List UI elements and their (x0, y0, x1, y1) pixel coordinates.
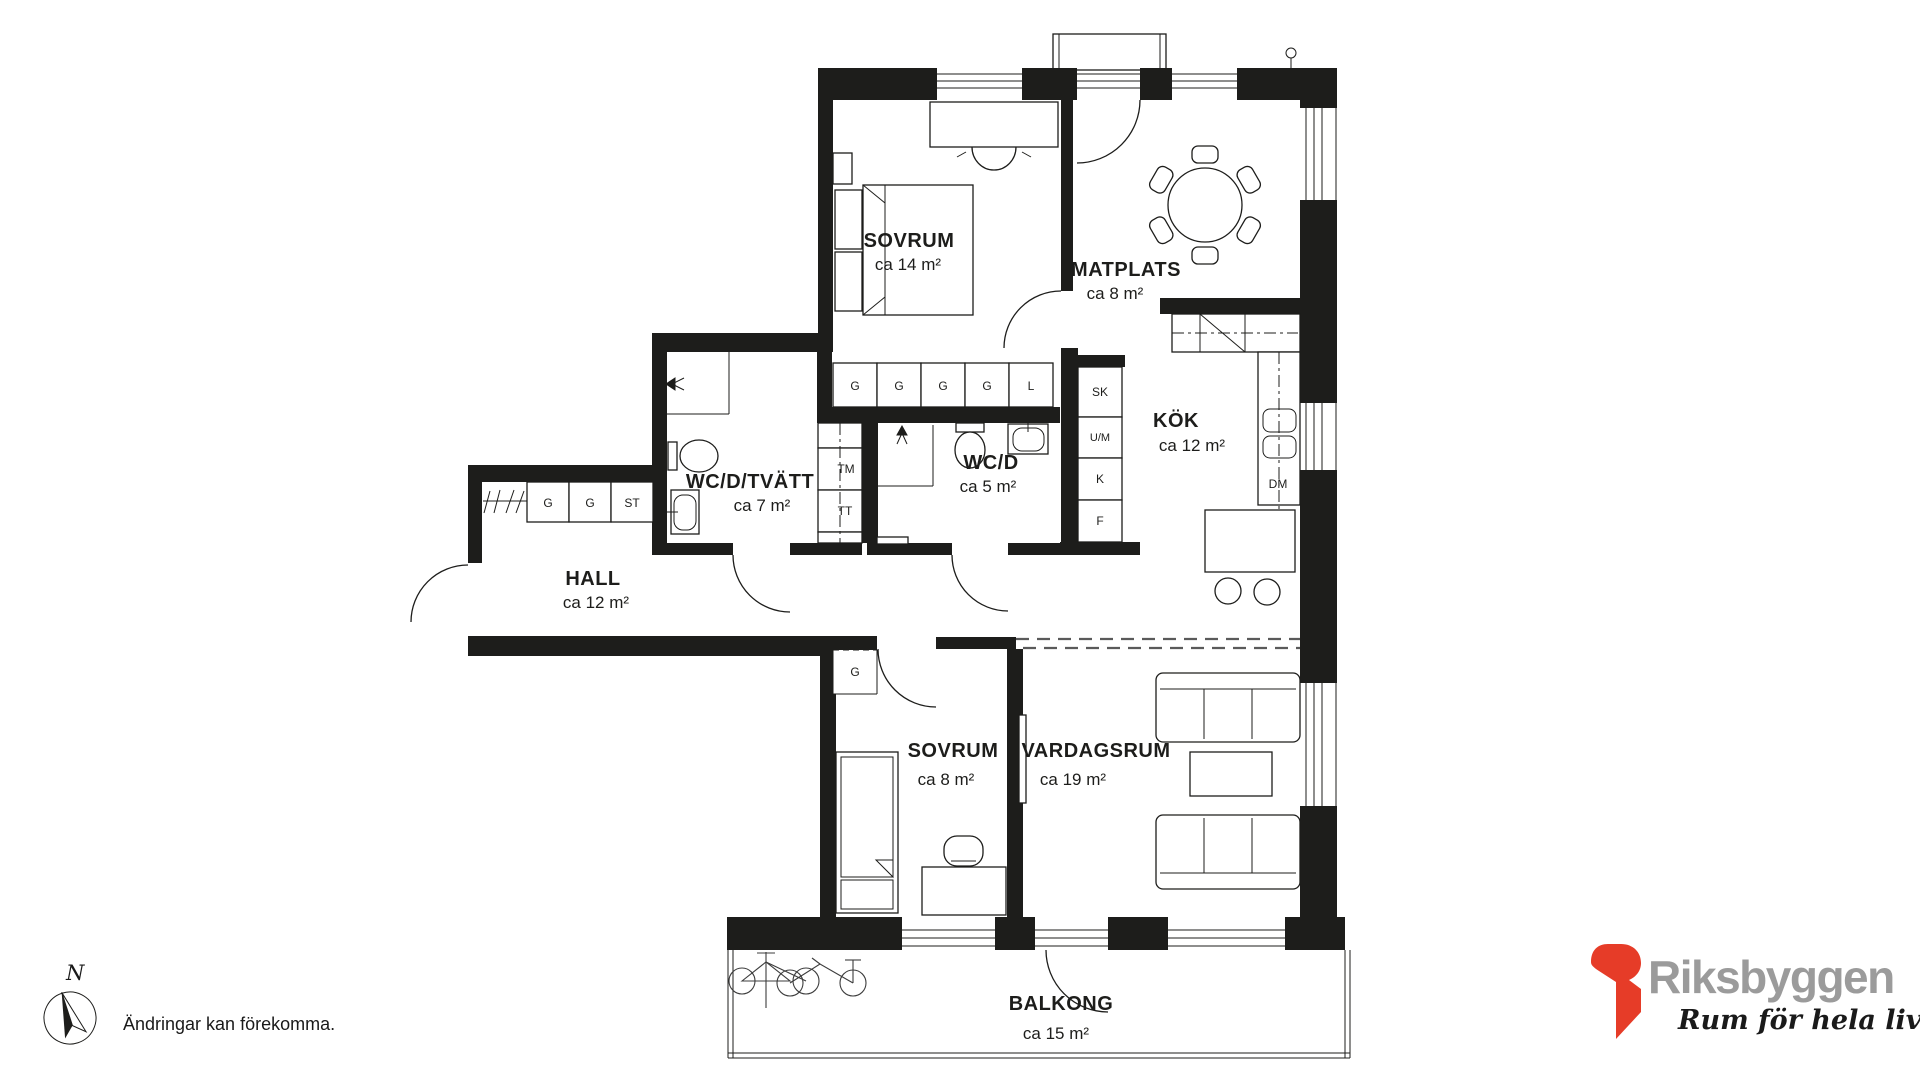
entry-door-arc (411, 565, 468, 622)
roof-shaft (1053, 34, 1296, 70)
room-label-matplats: MATPLATS ca 8 m² (1071, 259, 1181, 303)
window-matplats-top (1172, 74, 1237, 88)
vent-circle (1286, 48, 1296, 58)
window-bedroom2-bottom (902, 930, 995, 946)
room-label-vardagsrum: VARDAGSRUM ca 19 m² (1021, 740, 1170, 789)
window-livingroom-bottom (1168, 930, 1285, 946)
room-label-balkong: BALKONG ca 15 m² (1009, 993, 1114, 1043)
window-livingroom-right (1306, 683, 1336, 806)
entry-hatch-marks (483, 490, 527, 513)
doors (411, 100, 1140, 1012)
shelf (877, 537, 908, 544)
svg-text:SOVRUM: SOVRUM (864, 230, 955, 252)
svg-text:MATPLATS: MATPLATS (1071, 259, 1181, 281)
bicycles (729, 952, 866, 1008)
radiator (833, 153, 852, 184)
sofa-top (1156, 673, 1300, 742)
floorplan-page: G G G G L G G ST SK U/M K F (0, 0, 1920, 1080)
kitchen-fixtures: DM (1172, 314, 1300, 605)
room-label-wcd-tvatt: WC/D/TVÄTT ca 7 m² (686, 470, 814, 515)
room-label-hall: HALL ca 12 m² (563, 568, 629, 612)
cabinet-label: U/M (1090, 432, 1110, 444)
desk-chair (972, 147, 1016, 170)
matplats-balcony-door-arc (1077, 100, 1140, 163)
svg-text:SOVRUM: SOVRUM (908, 740, 999, 762)
toilet (668, 440, 718, 472)
bathroom1-fixtures (666, 352, 729, 534)
bathroom1-door-arc (733, 555, 790, 612)
svg-text:ca 12 m²: ca 12 m² (1159, 436, 1225, 455)
kitchen-cabinet-column: SK U/M K F (1078, 367, 1122, 542)
cabinet-label: F (1096, 514, 1103, 528)
bar-stool (1215, 578, 1241, 604)
riksbyggen-logo-mark (1591, 944, 1641, 1039)
cabinet-label: SK (1092, 385, 1108, 399)
sofa-bottom (1156, 815, 1300, 889)
bar-stool (1254, 579, 1280, 605)
single-bed (836, 752, 898, 913)
bedroom2-door-arc (878, 649, 936, 707)
desk (930, 102, 1058, 147)
cabinet-label: K (1096, 472, 1104, 486)
appliance-label: TT (838, 504, 853, 518)
riksbyggen-logo: Riksbyggen Rum för hela livet (1591, 944, 1920, 1039)
room-label-sovrum-8: SOVRUM ca 8 m² (908, 740, 999, 789)
hall-wardrobe-row: G G ST (527, 482, 653, 522)
floorplan-canvas: G G G G L G G ST SK U/M K F (0, 0, 1920, 1080)
bedroom1-furniture (833, 102, 1058, 315)
svg-text:WC/D: WC/D (963, 452, 1018, 474)
disclaimer-text: Ändringar kan förekomma. (123, 1014, 335, 1034)
desk (922, 867, 1006, 915)
compass-north-label: N (65, 961, 85, 985)
dining-furniture (1147, 146, 1262, 264)
window-kitchen-right (1306, 403, 1336, 470)
svg-text:ca 8 m²: ca 8 m² (1087, 284, 1144, 303)
balcony-door-sill (1035, 930, 1108, 946)
bedroom1-door-arc (1004, 291, 1061, 348)
kitchen-island (1205, 510, 1295, 572)
closet-label: G (850, 665, 859, 679)
closet-label: G (543, 496, 552, 510)
closet-label: G (585, 496, 594, 510)
room-label-kok: KÖK ca 12 m² (1153, 409, 1225, 455)
bedside-table (835, 252, 862, 311)
riksbyggen-tagline: Rum för hela livet (1677, 1005, 1920, 1036)
matplats-door-sill (1077, 74, 1140, 88)
shower-icon (897, 426, 907, 444)
open-plan-boundary (1016, 639, 1300, 648)
svg-text:ca 12 m²: ca 12 m² (563, 593, 629, 612)
shower-icon (666, 378, 684, 390)
riksbyggen-logo-text: Riksbyggen (1648, 951, 1894, 1003)
window-bedroom1-top (937, 74, 1022, 88)
bedside-table (835, 190, 862, 249)
svg-text:HALL: HALL (565, 568, 620, 590)
svg-text:VARDAGSRUM: VARDAGSRUM (1021, 740, 1170, 762)
closet-label: G (982, 379, 991, 393)
closet-label: G (894, 379, 903, 393)
dining-table (1168, 168, 1242, 242)
washbasin (667, 490, 699, 534)
laundry-column: TM TT (818, 423, 862, 543)
closet-label: G (850, 379, 859, 393)
closet-label: L (1028, 379, 1035, 393)
compass: N (37, 961, 103, 1051)
bedroom1-wardrobe-row: G G G G L (833, 363, 1053, 407)
svg-text:ca 8 m²: ca 8 m² (918, 770, 975, 789)
svg-text:ca 15 m²: ca 15 m² (1023, 1024, 1089, 1043)
washbasin (1008, 423, 1048, 454)
svg-text:ca 19 m²: ca 19 m² (1040, 770, 1106, 789)
window-matplats-right (1306, 108, 1336, 200)
svg-text:KÖK: KÖK (1153, 409, 1199, 432)
room-label-wcd: WC/D ca 5 m² (960, 452, 1019, 496)
svg-text:ca 5 m²: ca 5 m² (960, 477, 1017, 496)
svg-text:BALKONG: BALKONG (1009, 993, 1114, 1015)
closet-label: ST (624, 496, 640, 510)
svg-text:WC/D/TVÄTT: WC/D/TVÄTT (686, 470, 814, 493)
closet-label: G (938, 379, 947, 393)
appliance-label: TM (837, 462, 854, 476)
bedroom2-wardrobe: G (833, 650, 877, 694)
svg-text:ca 7 m²: ca 7 m² (734, 496, 791, 515)
svg-text:ca 14 m²: ca 14 m² (875, 255, 941, 274)
coffee-table (1190, 752, 1272, 796)
bathroom2-door-arc (952, 555, 1008, 611)
dishwasher-label: DM (1269, 477, 1288, 491)
